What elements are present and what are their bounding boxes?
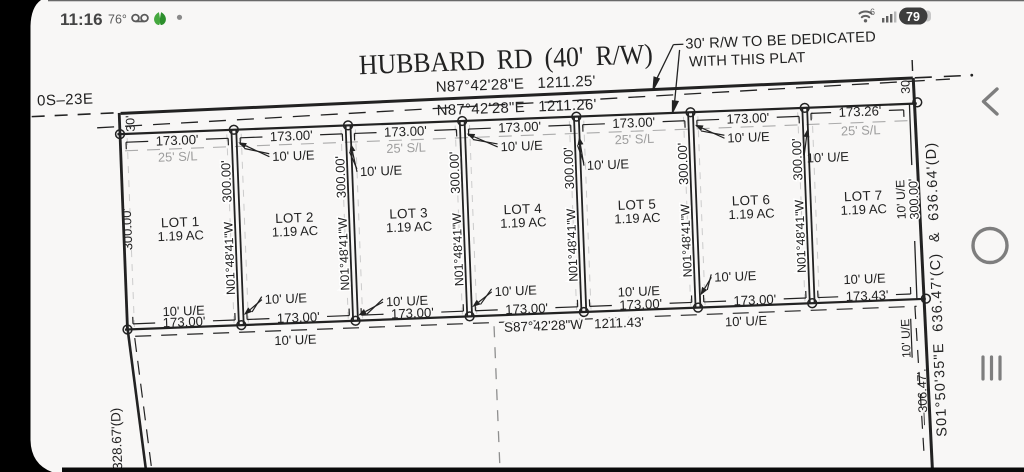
svg-text:10' U/E: 10' U/E [162, 303, 205, 320]
svg-text:10' U/E: 10' U/E [714, 268, 757, 285]
svg-text:76°: 76° [108, 13, 127, 27]
svg-text:N01°48'41"W: N01°48'41"W [564, 208, 581, 282]
svg-text:10' U/E: 10' U/E [386, 293, 429, 310]
svg-text:10' U/E: 10' U/E [843, 271, 886, 288]
svg-text:10' U/E: 10' U/E [898, 319, 913, 358]
svg-text:300.00': 300.00' [561, 147, 578, 190]
svg-text:10' U/E: 10' U/E [617, 283, 660, 300]
svg-text:S87°42'28"W 1211.43': S87°42'28"W 1211.43' [504, 314, 645, 334]
svg-text:N01°48'41"W: N01°48'41"W [336, 217, 353, 291]
svg-text:0S–23E: 0S–23E [37, 90, 94, 109]
svg-text:173.00': 173.00' [612, 114, 655, 131]
svg-text:10' U/E: 10' U/E [727, 129, 770, 146]
svg-text:6: 6 [870, 7, 875, 17]
svg-text:25' S/L: 25' S/L [841, 122, 881, 139]
svg-text:N01°48'41"W: N01°48'41"W [221, 221, 238, 295]
svg-text:10' U/E: 10' U/E [272, 147, 315, 164]
svg-text:WITH THIS PLAT: WITH THIS PLAT [689, 50, 806, 70]
svg-text:N01°48'41"W: N01°48'41"W [792, 199, 809, 273]
svg-text:10' U/E: 10' U/E [725, 313, 768, 330]
svg-text:1.19 AC: 1.19 AC [728, 205, 775, 222]
svg-text:300.00': 300.00' [675, 142, 692, 185]
svg-text:300.00': 300.00' [789, 138, 806, 181]
svg-text:1.19 AC: 1.19 AC [386, 219, 433, 236]
svg-text:HUBBARD RD (40' R/W): HUBBARD RD (40' R/W) [358, 39, 653, 81]
svg-text:1.19 AC: 1.19 AC [157, 227, 204, 244]
svg-text:173.00': 173.00' [505, 300, 548, 317]
svg-text:25' S/L: 25' S/L [386, 140, 426, 157]
svg-text:173.00': 173.00' [155, 132, 198, 149]
svg-text:10' U/E: 10' U/E [587, 156, 630, 173]
svg-text:1.19 AC: 1.19 AC [272, 223, 319, 240]
svg-text:300.00': 300.00' [119, 208, 136, 251]
svg-text:173.00': 173.00' [384, 123, 427, 140]
svg-text:1.19 AC: 1.19 AC [614, 210, 661, 227]
svg-text:300.00': 300.00' [332, 156, 349, 199]
svg-text:1.19 AC: 1.19 AC [500, 214, 547, 231]
svg-text:30': 30' [123, 115, 138, 132]
svg-text:10' U/E: 10' U/E [500, 138, 543, 155]
svg-text:—306.47'.: —306.47'. [915, 368, 931, 425]
svg-text:10' U/E: 10' U/E [806, 149, 849, 166]
svg-text:173.43': 173.43' [845, 287, 888, 304]
svg-text:1.19 AC: 1.19 AC [840, 201, 887, 218]
svg-text:30': 30' [898, 77, 913, 94]
svg-text:173.26': 173.26' [838, 103, 881, 120]
svg-text:11:16: 11:16 [60, 10, 103, 29]
svg-text:173.00': 173.00' [277, 309, 320, 326]
svg-text:25' S/L: 25' S/L [614, 131, 654, 148]
svg-text:300.00': 300.00' [218, 160, 235, 203]
svg-text:10' U/E: 10' U/E [360, 163, 403, 180]
svg-text:300.00': 300.00' [446, 151, 463, 194]
svg-text:N01°48'41"W: N01°48'41"W [450, 212, 467, 286]
svg-text:N01°48'41"W: N01°48'41"W [678, 204, 695, 278]
svg-text:173.00': 173.00' [733, 292, 776, 309]
svg-text:173.00': 173.00' [498, 119, 541, 136]
svg-text:173.00': 173.00' [270, 128, 313, 145]
svg-text:10' U/E: 10' U/E [264, 290, 307, 307]
svg-text:79: 79 [906, 10, 920, 24]
svg-text:300.00': 300.00' [906, 178, 922, 219]
svg-text:25' S/L: 25' S/L [158, 148, 198, 165]
svg-text:30' R/W TO BE DEDICATED: 30' R/W TO BE DEDICATED [685, 29, 876, 52]
svg-text:173.00': 173.00' [726, 110, 769, 127]
svg-text:10' U/E: 10' U/E [494, 282, 537, 299]
svg-text:328.67'(D): 328.67'(D) [108, 407, 125, 470]
svg-text:10' U/E: 10' U/E [274, 332, 317, 349]
